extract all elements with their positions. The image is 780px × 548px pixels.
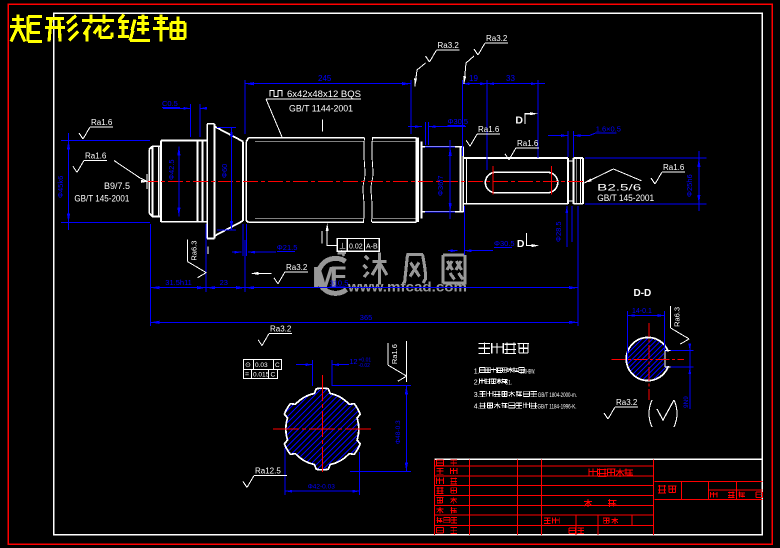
svg-text:4.: 4. [474,404,480,411]
svg-text:365: 365 [360,313,373,322]
svg-text:A-B: A-B [366,244,378,251]
svg-text:Ra12.5: Ra12.5 [255,467,281,476]
svg-text:33: 33 [506,74,515,83]
svg-text:Ra1.6: Ra1.6 [517,139,539,148]
svg-text:-0.02: -0.02 [359,363,371,369]
svg-text:0.03: 0.03 [255,362,268,369]
svg-text:Φ36f7: Φ36f7 [436,175,445,196]
svg-text:D-D: D-D [634,288,652,299]
svg-text:www.mfcad.com: www.mfcad.com [347,280,467,295]
svg-text:31.5h11: 31.5h11 [165,278,192,287]
svg-text:Φ30.5: Φ30.5 [448,117,469,126]
svg-text:Ra1.6: Ra1.6 [663,163,685,172]
svg-text:19: 19 [469,74,478,83]
svg-text:Φ45k6: Φ45k6 [56,176,65,198]
svg-text:Ra3.2: Ra3.2 [286,263,308,272]
svg-text:0.02: 0.02 [349,244,363,251]
svg-text:245: 245 [318,74,332,83]
svg-text:Φ48-0.3: Φ48-0.3 [395,420,402,444]
svg-text:1.: 1. [474,368,480,375]
svg-text:12: 12 [349,357,357,366]
svg-text:6x42x48x12 BQS: 6x42x48x12 BQS [287,89,361,100]
svg-text:Ra3.2: Ra3.2 [438,41,460,50]
svg-text:Ra3.2: Ra3.2 [486,34,508,43]
svg-text:C: C [275,362,280,369]
svg-text:Ra3.2: Ra3.2 [270,325,292,334]
svg-text:⊙: ⊙ [245,362,251,369]
svg-text:D: D [517,238,525,250]
svg-text:GB/T 1144-2001: GB/T 1144-2001 [289,104,353,115]
svg-text:Φ30.5: Φ30.5 [494,239,515,248]
svg-text:C: C [271,372,276,379]
svg-text:C1.: C1. [505,380,512,387]
svg-text:Φ42-0.03: Φ42-0.03 [308,484,336,491]
svg-text:GB/T 145-2001: GB/T 145-2001 [597,193,654,204]
svg-text:Ra1.6: Ra1.6 [85,151,107,160]
svg-text:23: 23 [220,278,228,287]
svg-text:Ra6.3: Ra6.3 [673,307,682,327]
svg-text:Φ25h6: Φ25h6 [685,174,694,197]
svg-text:Φ28.5: Φ28.5 [554,221,563,242]
svg-text:C0.5: C0.5 [162,99,178,108]
svg-text:GB/T 145-2001: GB/T 145-2001 [74,194,129,205]
svg-text:B2.5/6: B2.5/6 [597,183,641,194]
svg-text:235HBW.: 235HBW. [520,368,535,375]
svg-text:Φ60: Φ60 [220,164,229,178]
svg-text:D: D [515,115,523,127]
svg-text:1.6×0.5: 1.6×0.5 [596,125,621,134]
svg-text:14-0.1: 14-0.1 [632,308,652,315]
svg-text:2.: 2. [474,380,480,387]
svg-text:GB/T 1184-1996-K.: GB/T 1184-1996-K. [538,404,577,411]
svg-text:GB/T 1804-2000-m.: GB/T 1804-2000-m. [538,392,577,399]
svg-text:=: = [245,372,249,379]
svg-text:Ra6.3: Ra6.3 [190,241,199,261]
svg-text:Ra3.2: Ra3.2 [616,398,638,407]
svg-text:9N9: 9N9 [683,396,690,408]
svg-text:Ra1.6: Ra1.6 [478,125,500,134]
svg-text:0.015: 0.015 [253,372,270,379]
svg-text:Φ21.5: Φ21.5 [277,243,298,252]
svg-text:Ra1.6: Ra1.6 [91,118,113,127]
svg-text:Φ42.5: Φ42.5 [167,159,176,180]
svg-text:B9/7.5: B9/7.5 [104,181,130,192]
svg-text:Ra1.6: Ra1.6 [390,344,399,364]
svg-text:⊥: ⊥ [339,242,346,251]
svg-text:310.5: 310.5 [330,279,349,288]
svg-text:3.: 3. [474,392,480,399]
